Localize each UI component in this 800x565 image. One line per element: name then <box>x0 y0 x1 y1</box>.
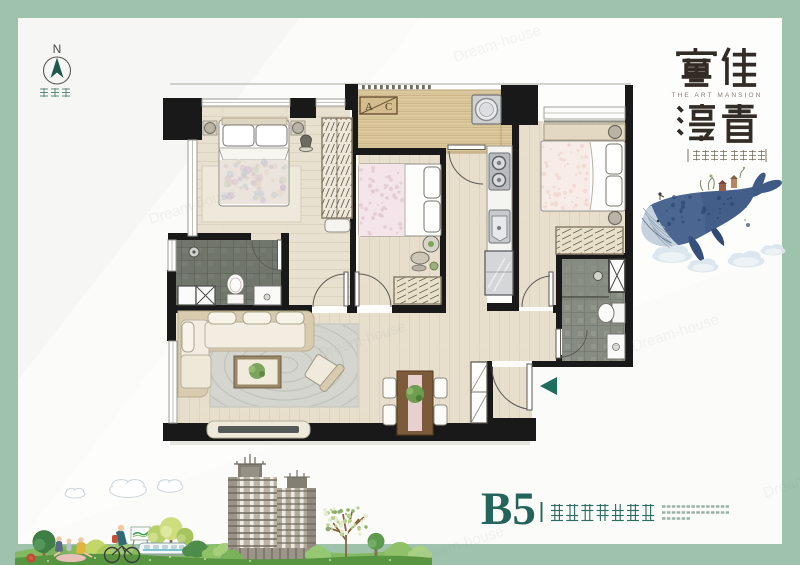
svg-text:A: A <box>365 101 373 113</box>
svg-text:N: N <box>53 42 62 56</box>
svg-text:C: C <box>385 101 392 113</box>
svg-text:THE ART MANSION: THE ART MANSION <box>672 92 763 99</box>
